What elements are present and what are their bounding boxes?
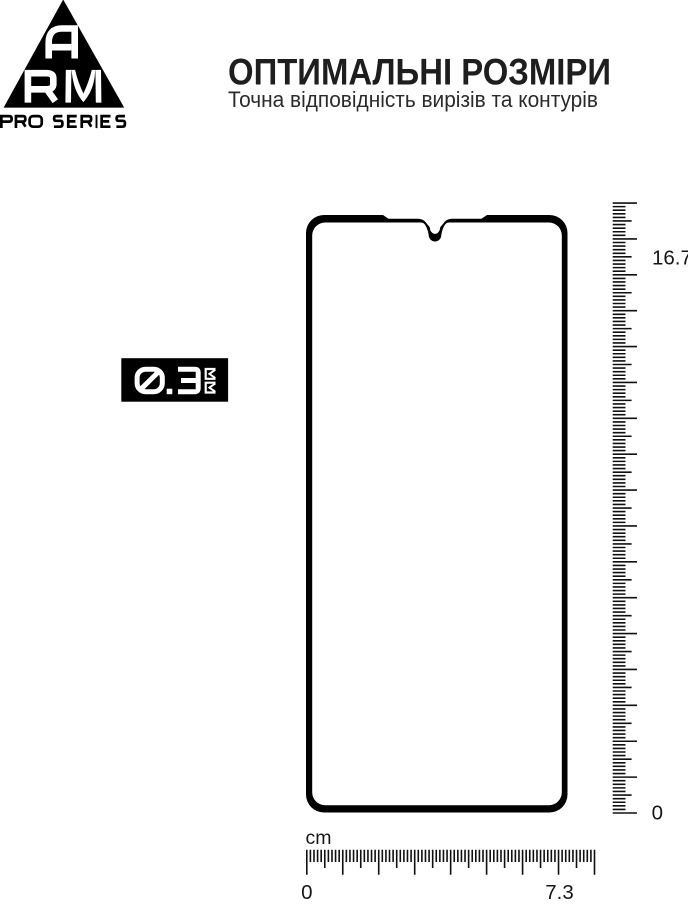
svg-text:16.7: 16.7 [652,246,688,269]
svg-text:Точна відповідність вирізів та: Точна відповідність вирізів та контурів [228,87,598,112]
svg-text:7.3: 7.3 [545,881,574,904]
svg-text:0: 0 [652,801,663,824]
svg-text:cm: cm [306,827,332,849]
svg-text:0: 0 [301,881,312,904]
